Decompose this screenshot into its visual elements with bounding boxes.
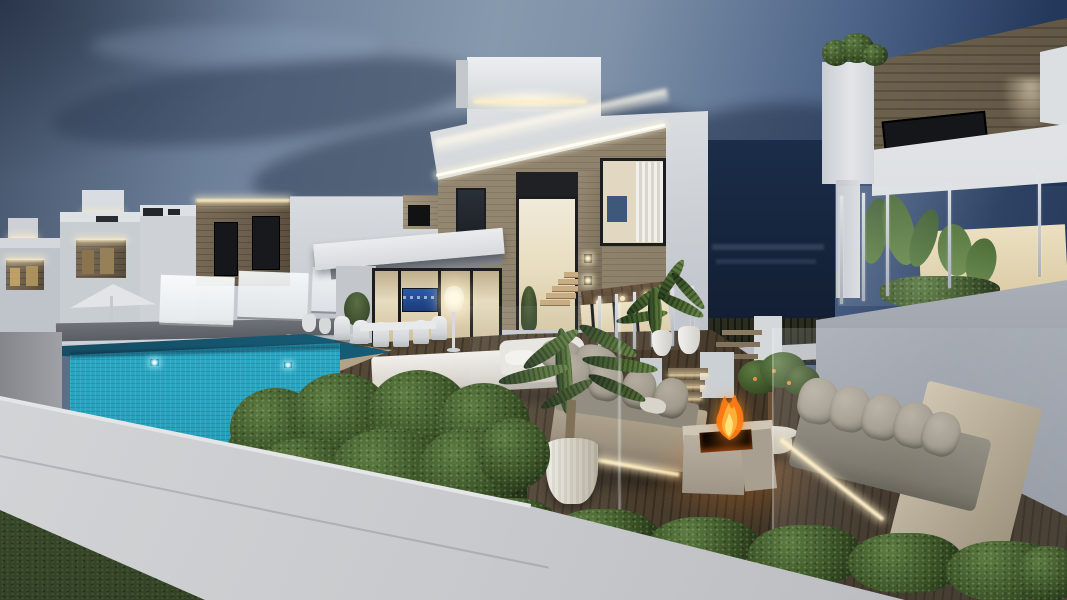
frosted-glass-panel [159, 275, 235, 328]
stone-facade-led [196, 199, 290, 202]
small-pot [302, 314, 316, 332]
frosted-glass-panel [237, 271, 309, 321]
step-tread [668, 368, 708, 373]
floor-lamp-shade [444, 286, 464, 313]
planter-shrub [862, 44, 888, 66]
balustrade-post [840, 196, 843, 304]
lit-window [82, 250, 94, 274]
small-pot [319, 318, 331, 334]
tree-fruit [753, 377, 757, 381]
step-tread [722, 330, 762, 335]
step-tread [716, 342, 760, 347]
stair-step [564, 272, 578, 277]
lit-window [26, 266, 38, 286]
pool-light [284, 362, 292, 368]
tv-screen [402, 288, 438, 312]
dining-chair [334, 316, 350, 340]
villa-render-scene [0, 0, 1067, 600]
distant-buildings [716, 259, 816, 264]
recess-led [76, 239, 126, 241]
cloud [90, 26, 380, 66]
curtains [636, 162, 663, 242]
dark-window [252, 216, 280, 270]
recess-led [6, 259, 44, 261]
stair-step [546, 293, 576, 298]
parapet-led [474, 100, 586, 103]
floor-lamp-pole [452, 312, 455, 350]
stair-step [540, 300, 570, 305]
roof-parapet-side [456, 60, 468, 108]
distant-buildings [712, 244, 824, 250]
lit-window [100, 248, 114, 274]
roof-equipment [143, 208, 163, 216]
dark-window [214, 222, 238, 276]
dark-window [408, 205, 430, 226]
hedge-row-blob [1018, 546, 1067, 600]
window-art [607, 196, 627, 222]
balustrade-post [886, 190, 889, 296]
balustrade-post [1038, 175, 1041, 277]
wall-sconce [584, 254, 592, 263]
fire-flames [698, 384, 760, 442]
stair-step [552, 286, 578, 291]
balustrade-post [862, 193, 865, 301]
roof-equipment [168, 209, 180, 215]
balustrade-post [948, 184, 951, 288]
stair-step [558, 279, 578, 284]
stair-window-header [516, 172, 578, 198]
lit-window [10, 268, 20, 286]
wall-sconce [584, 276, 592, 285]
hedge-blob [478, 418, 550, 490]
step-led [668, 374, 708, 376]
pool-light [150, 359, 159, 366]
planter-pillar [822, 62, 874, 184]
